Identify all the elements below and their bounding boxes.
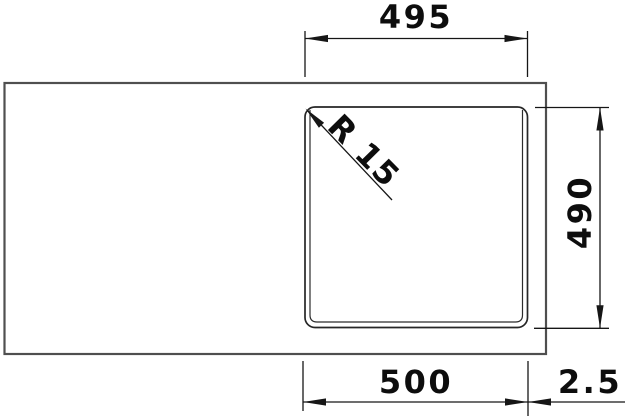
technical-drawing-canvas: 495 490 500 2.5 R 15	[0, 0, 625, 417]
dim-top-495	[305, 31, 528, 77]
dim-label-right-gap: 2.5	[558, 366, 622, 398]
dim-label-bottom-width: 500	[379, 366, 453, 398]
dim-label-right-depth: 490	[564, 175, 596, 249]
dim-label-top-width: 495	[379, 1, 453, 33]
sink-dimension-drawing	[0, 0, 625, 417]
